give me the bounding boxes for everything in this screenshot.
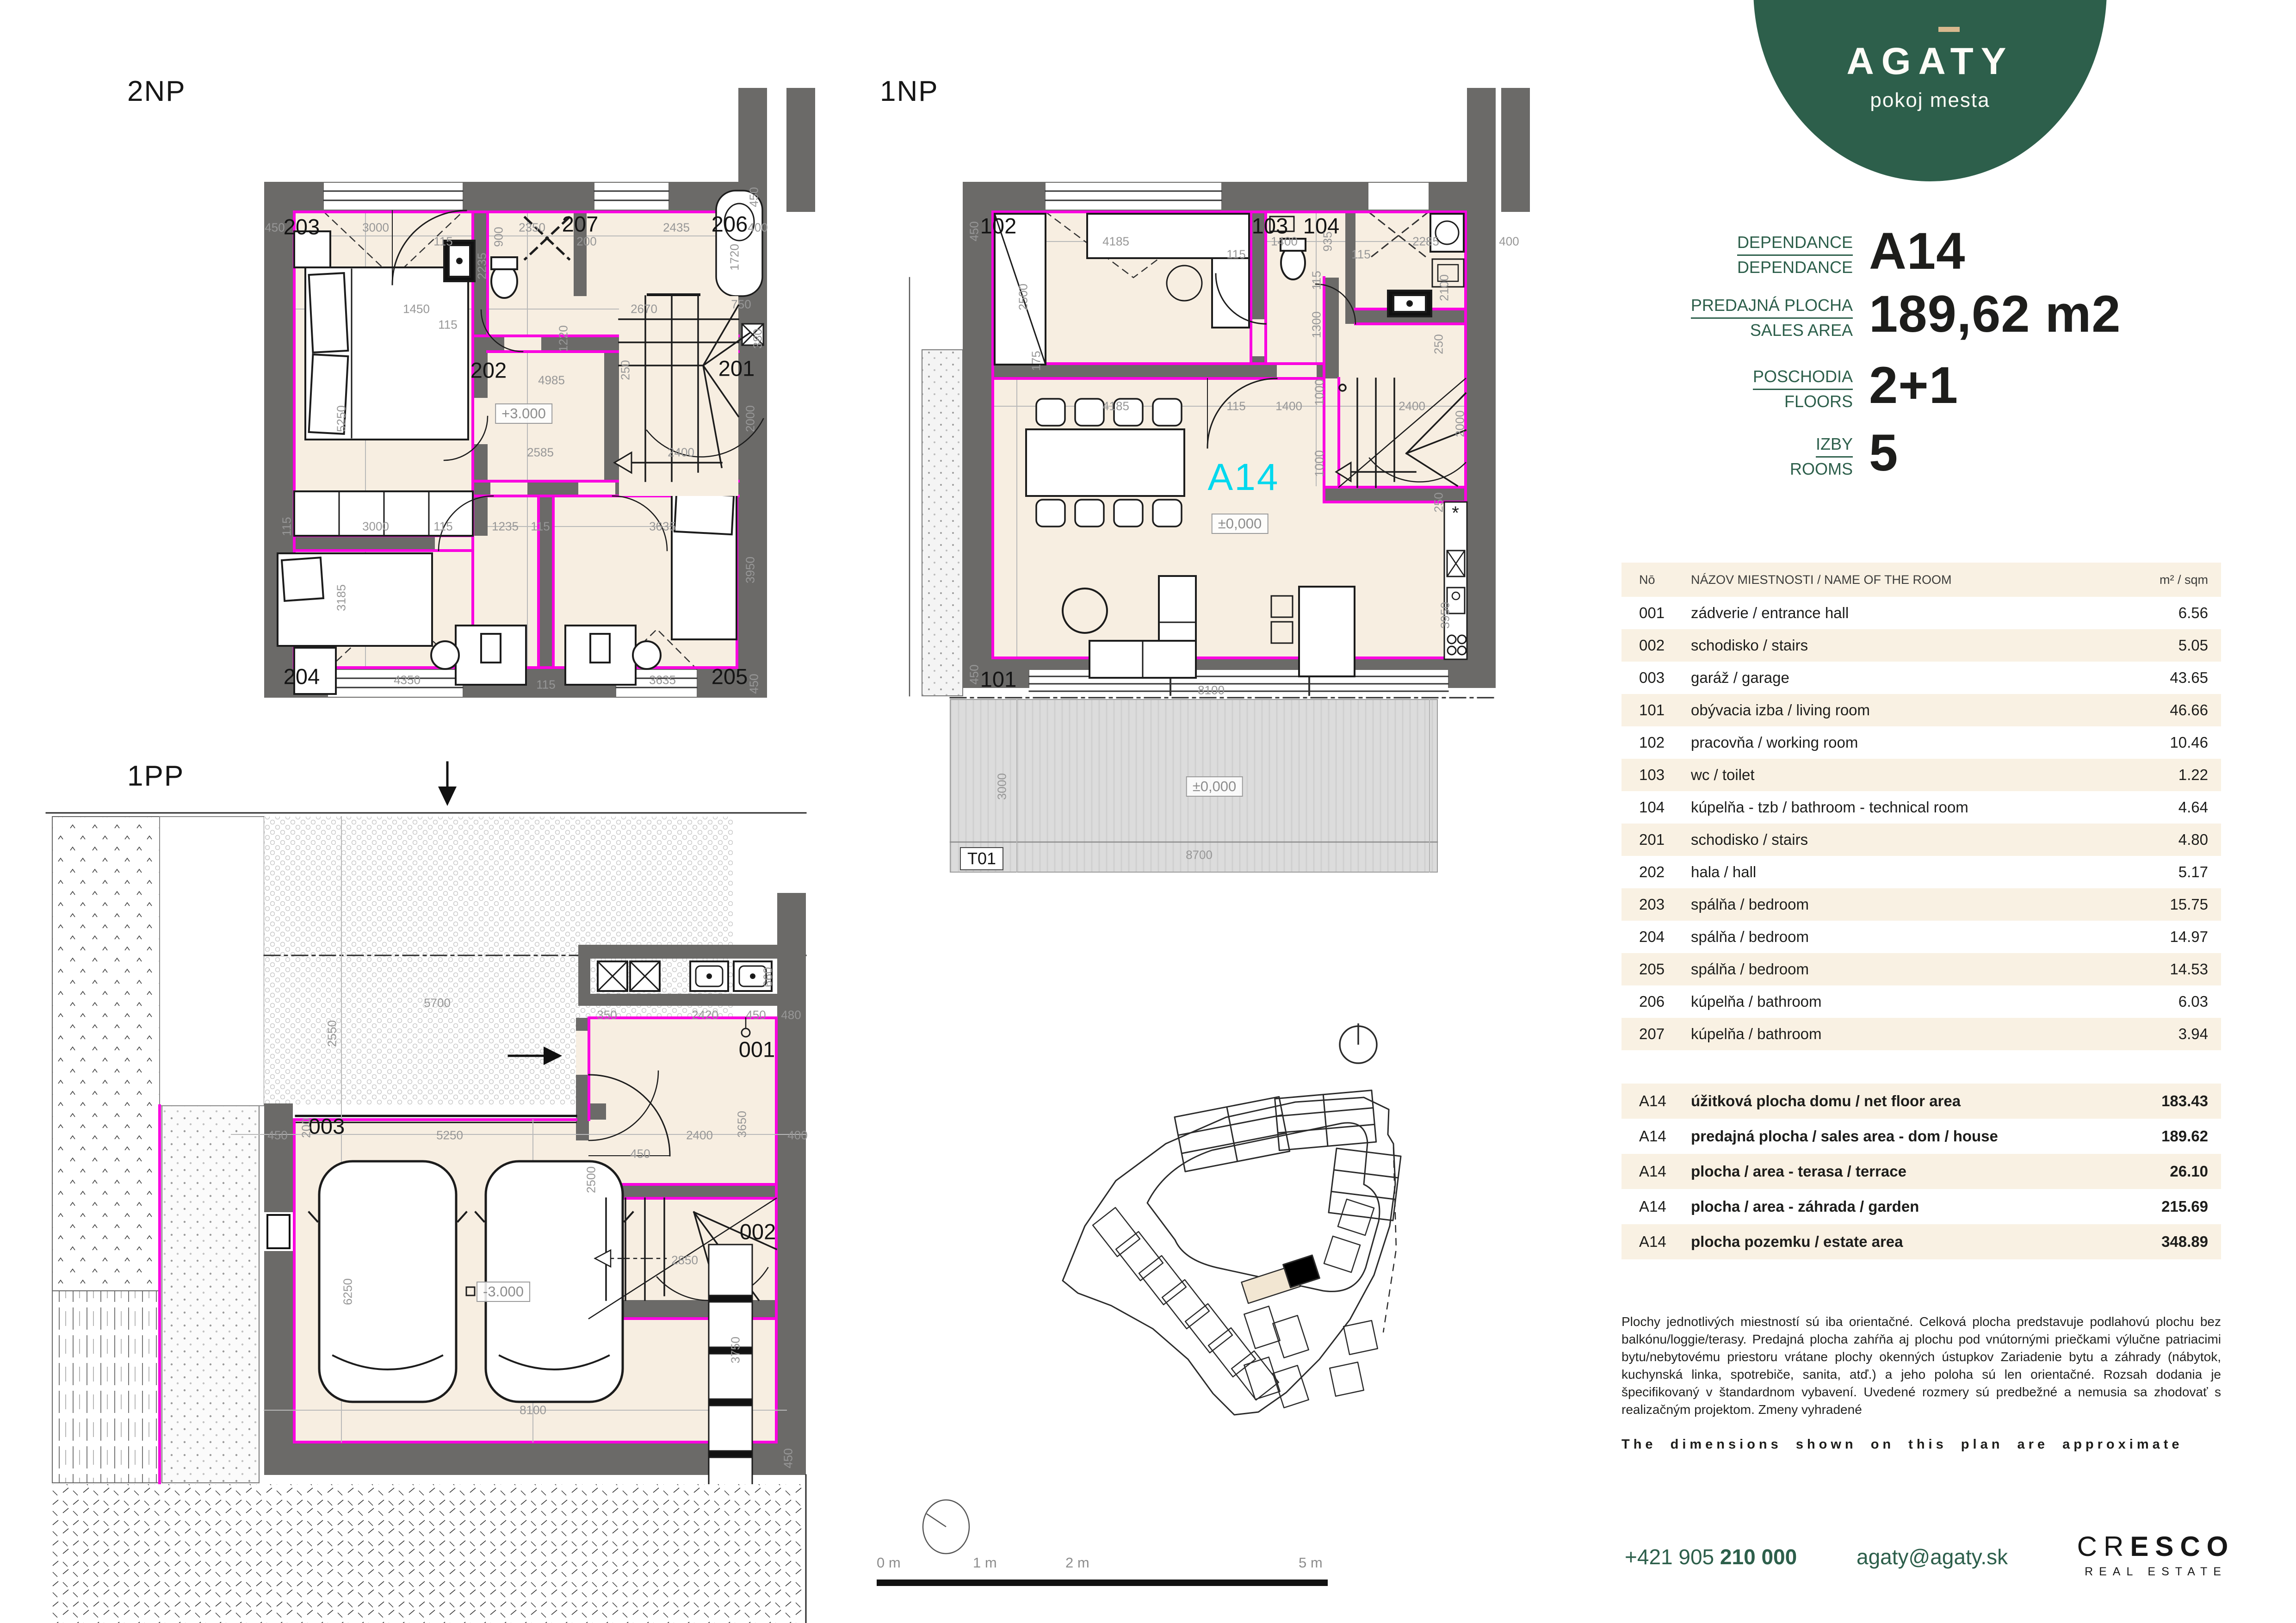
summary-name: plocha pozemku / estate area	[1691, 1233, 2119, 1251]
dim-label: 450	[747, 674, 761, 694]
dim-label: 8100	[520, 1403, 546, 1418]
level-label: -3.000	[477, 1282, 530, 1302]
room-area: 4.80	[2119, 831, 2221, 849]
scale-bar: 0 m 1 m 2 m 5 m	[877, 1555, 1332, 1586]
info-value-rooms: 5	[1869, 423, 1898, 483]
room-name: obývacia izba / living room	[1691, 701, 2119, 719]
dim-label: 450	[967, 664, 982, 684]
room-table-row-206: 206kúpelňa / bathroom6.03	[1621, 985, 2221, 1018]
info-value-unit: A14	[1869, 221, 1965, 281]
dim-label: 115	[1226, 399, 1245, 414]
disclaimer-text-en: The dimensions shown on this plan are ap…	[1621, 1437, 2221, 1452]
room-name: schodisko / stairs	[1691, 831, 2119, 849]
dim-label: 2500	[1016, 284, 1031, 310]
room-label-003: 003	[309, 1114, 345, 1139]
dim-label: 450	[267, 1128, 287, 1143]
info-label-rooms: IZBYROOMS	[1608, 434, 1853, 479]
dim-label: 115	[1310, 271, 1324, 290]
room-area: 43.65	[2119, 669, 2221, 687]
dim-label: 2000	[743, 405, 758, 432]
agaty-logo: AGATY pokoj mesta	[1753, 0, 2107, 181]
room-name: kúpelňa / bathroom	[1691, 993, 2119, 1010]
dim-label: 2585	[527, 446, 554, 460]
logo-name: AGATY	[1753, 40, 2107, 83]
summary-area: 26.10	[2119, 1163, 2221, 1180]
dim-label: 2285	[1412, 235, 1439, 249]
dim-label: 480	[781, 1008, 801, 1022]
room-area: 5.17	[2119, 863, 2221, 881]
room-no: 207	[1621, 1025, 1691, 1043]
dim-label: 115	[433, 520, 452, 534]
dim-label: 450	[630, 1147, 650, 1161]
tag-label-T01: T01	[960, 847, 1003, 870]
scale-0m: 0 m	[877, 1555, 901, 1571]
room-table-row-101: 101obývacia izba / living room46.66	[1621, 694, 2221, 726]
dim-label: 3185	[334, 584, 349, 611]
room-no: 101	[1621, 701, 1691, 719]
dim-label: 200	[299, 1118, 314, 1138]
dim-label: 8700	[1186, 848, 1213, 862]
info-label-dependance: DEPENDANCEDEPENDANCE	[1608, 232, 1853, 278]
room-label-204: 204	[284, 664, 320, 689]
summary-row-0: A14úžitková plocha domu / net floor area…	[1621, 1084, 2221, 1119]
dim-label: 175	[1029, 351, 1044, 371]
dim-label: 2350	[519, 221, 545, 235]
footer-phone[interactable]: +421 905 210 000	[1625, 1544, 1797, 1569]
summary-row-3: A14plocha / area - záhrada / garden215.6…	[1621, 1189, 2221, 1224]
dim-label: 5700	[424, 996, 451, 1010]
room-name: spálňa / bedroom	[1691, 896, 2119, 913]
dim-label: 3635	[649, 520, 676, 534]
level-label: ±0,000	[1186, 776, 1243, 797]
dim-label: 8100	[1198, 683, 1225, 698]
room-name: spálňa / bedroom	[1691, 928, 2119, 946]
cresco-bold: ESCO	[2130, 1531, 2234, 1562]
unit-label-A14: A14	[1208, 456, 1280, 499]
dim-label: 250	[1432, 492, 1446, 512]
dim-label: 2850	[671, 1253, 698, 1268]
dim-label: 400	[1499, 235, 1519, 249]
room-label-102: 102	[980, 213, 1016, 239]
dim-label: 400	[748, 221, 767, 235]
dim-label: 5250	[334, 405, 349, 432]
scale-bar-rule	[877, 1580, 1328, 1586]
summary-area: 215.69	[2119, 1198, 2221, 1215]
floorplan-sheet: { "logo": { "name": "AGATY", "tagline": …	[0, 0, 2296, 1623]
room-area: 3.94	[2119, 1025, 2221, 1043]
dim-label: 115	[438, 318, 457, 332]
dim-label: 2400	[668, 446, 694, 460]
room-no: 002	[1621, 637, 1691, 654]
summary-row-2: A14plocha / area - terasa / terrace26.10	[1621, 1154, 2221, 1189]
dim-label: 900	[492, 227, 506, 247]
dim-label: 4185	[1102, 235, 1129, 249]
room-name: hala / hall	[1691, 863, 2119, 881]
summary-unit: A14	[1621, 1092, 1691, 1110]
summary-area: 189.62	[2119, 1127, 2221, 1145]
room-area: 6.56	[2119, 604, 2221, 622]
dim-label: 2400	[686, 1128, 713, 1143]
dim-label: 935	[1321, 231, 1335, 251]
dim-label: 4985	[538, 373, 565, 388]
room-area: 46.66	[2119, 701, 2221, 719]
dim-label: 3000	[362, 520, 389, 534]
room-table-row-203: 203spálňa / bedroom15.75	[1621, 888, 2221, 921]
cresco-thin: CR	[2077, 1531, 2130, 1562]
dim-label: 3750	[729, 1337, 743, 1363]
room-table-row-103: 103wc / toilet1.22	[1621, 759, 2221, 791]
dim-label: 250	[1432, 334, 1446, 354]
cresco-subtitle: REAL ESTATE	[2059, 1565, 2253, 1579]
room-area: 6.03	[2119, 993, 2221, 1010]
room-no: 102	[1621, 734, 1691, 751]
dim-label: 2420	[692, 1008, 718, 1022]
dim-label: 2500	[584, 1166, 599, 1193]
room-label-207: 207	[562, 211, 598, 237]
level-label: ±0,000	[1212, 514, 1269, 534]
room-area: 15.75	[2119, 896, 2221, 913]
room-label-206: 206	[712, 211, 748, 237]
dim-label: 2550	[325, 1020, 340, 1047]
dim-label: 1400	[1271, 235, 1298, 249]
footer-email[interactable]: agaty@agaty.sk	[1857, 1544, 2008, 1569]
info-label-sales-area: PREDAJNÁ PLOCHASALES AREA	[1608, 295, 1853, 341]
room-no: 206	[1621, 993, 1691, 1010]
room-name: spálňa / bedroom	[1691, 960, 2119, 978]
room-no: 203	[1621, 896, 1691, 913]
dim-label: 660	[761, 967, 775, 987]
level-label: +3.000	[495, 403, 552, 424]
disclaimer-text: Plochy jednotlivých miestností sú iba or…	[1621, 1313, 2221, 1419]
room-area: 10.46	[2119, 734, 2221, 751]
room-table-row-104: 104kúpelňa - tzb / bathroom - technical …	[1621, 791, 2221, 824]
dim-label: 2435	[663, 221, 690, 235]
room-label-201: 201	[718, 356, 755, 381]
summary-name: predajná plocha / sales area - dom / hou…	[1691, 1127, 2119, 1145]
dim-label: 1400	[1275, 399, 1302, 414]
info-value-sales-area: 189,62 m2	[1869, 284, 2121, 344]
dim-label: 2670	[631, 302, 657, 316]
cresco-logo: CRESCO REAL ESTATE	[2059, 1530, 2253, 1579]
room-table-row-003: 003garáž / garage43.65	[1621, 662, 2221, 694]
room-area: 4.64	[2119, 799, 2221, 816]
room-table-row-102: 102pracovňa / working room10.46	[1621, 726, 2221, 759]
room-label-203: 203	[284, 214, 320, 240]
room-no: 201	[1621, 831, 1691, 849]
summary-table: A14úžitková plocha domu / net floor area…	[1621, 1084, 2221, 1259]
summary-unit: A14	[1621, 1233, 1691, 1251]
header-name: NÁZOV MIESTNOSTI / NAME OF THE ROOM	[1691, 573, 2119, 587]
room-area: 14.97	[2119, 928, 2221, 946]
room-table-header: Nō NÁZOV MIESTNOSTI / NAME OF THE ROOM m…	[1621, 563, 2221, 597]
header-no: Nō	[1621, 573, 1691, 587]
dim-label: 750	[731, 297, 751, 312]
scale-2m: 2 m	[1065, 1555, 1089, 1571]
dim-label: 3000	[362, 221, 389, 235]
room-label-101: 101	[980, 667, 1016, 692]
scale-5m: 5 m	[1299, 1555, 1323, 1571]
room-area: 5.05	[2119, 637, 2221, 654]
dim-label: 350	[597, 1008, 617, 1022]
room-no: 205	[1621, 960, 1691, 978]
dim-label: 3950	[743, 557, 758, 583]
room-table: Nō NÁZOV MIESTNOSTI / NAME OF THE ROOM m…	[1621, 563, 2221, 1050]
room-name: zádverie / entrance hall	[1691, 604, 2119, 622]
summary-unit: A14	[1621, 1163, 1691, 1180]
room-area: 1.22	[2119, 766, 2221, 784]
dim-label: 2235	[475, 253, 489, 279]
dim-label: 115	[1226, 248, 1245, 262]
north-clock-icon	[918, 1498, 974, 1558]
dim-label: 115	[433, 235, 452, 249]
dim-label: 2000	[1453, 410, 1467, 437]
info-value-floors: 2+1	[1869, 355, 1958, 415]
summary-name: plocha / area - terasa / terrace	[1691, 1163, 2119, 1180]
dim-label: 1720	[728, 244, 742, 271]
dim-label: 2100	[1437, 274, 1452, 301]
dim-label: 200	[576, 235, 596, 249]
room-area: 14.53	[2119, 960, 2221, 978]
room-name: kúpelňa / bathroom	[1691, 1025, 2119, 1043]
summary-area: 348.89	[2119, 1233, 2221, 1251]
dim-label: 450	[967, 221, 982, 241]
dim-label: 1450	[403, 302, 430, 316]
dim-label: 5250	[436, 1128, 463, 1143]
summary-unit: A14	[1621, 1127, 1691, 1145]
dim-label: 450	[781, 1448, 796, 1468]
header-area: m² / sqm	[2119, 573, 2221, 587]
room-label-001: 001	[739, 1037, 775, 1062]
room-name: wc / toilet	[1691, 766, 2119, 784]
room-no: 204	[1621, 928, 1691, 946]
summary-name: plocha / area - záhrada / garden	[1691, 1198, 2119, 1215]
dim-label: 450	[747, 187, 761, 207]
summary-name: úžitková plocha domu / net floor area	[1691, 1092, 2119, 1110]
dim-label: 115	[280, 517, 294, 536]
room-no: 104	[1621, 799, 1691, 816]
dim-label: 115	[536, 678, 555, 692]
dim-label: 115	[531, 520, 550, 534]
dim-label: 3000	[995, 773, 1009, 800]
dim-label: 450	[746, 1008, 766, 1022]
logo-macron-icon	[1938, 27, 1960, 32]
dim-label: 1220	[557, 325, 571, 352]
room-table-row-201: 201schodisko / stairs4.80	[1621, 824, 2221, 856]
summary-area: 183.43	[2119, 1092, 2221, 1110]
dim-label: 3950	[1438, 602, 1453, 629]
dim-label: 115	[1351, 248, 1370, 262]
room-table-row-205: 205spálňa / bedroom14.53	[1621, 953, 2221, 985]
dim-label: 4350	[394, 673, 421, 688]
dim-label: 450	[265, 221, 285, 235]
room-table-row-002: 002schodisko / stairs5.05	[1621, 629, 2221, 662]
room-table-row-207: 207kúpelňa / bathroom3.94	[1621, 1018, 2221, 1050]
room-table-row-204: 204spálňa / bedroom14.97	[1621, 921, 2221, 953]
room-name: garáž / garage	[1691, 669, 2119, 687]
dim-label: 400	[787, 1128, 807, 1143]
room-name: schodisko / stairs	[1691, 637, 2119, 654]
room-label-002: 002	[740, 1219, 776, 1245]
dim-label: 1000	[1312, 379, 1327, 406]
dim-label: 3635	[649, 673, 676, 688]
room-table-row-001: 001zádverie / entrance hall6.56	[1621, 597, 2221, 629]
room-no: 103	[1621, 766, 1691, 784]
dim-label: 1235	[492, 520, 519, 534]
dim-label: 1000	[1312, 450, 1327, 477]
scale-bar-labels: 0 m 1 m 2 m 5 m	[877, 1555, 1332, 1573]
dim-label: 1300	[1310, 311, 1324, 338]
room-no: 202	[1621, 863, 1691, 881]
dim-label: 2400	[1399, 399, 1425, 414]
logo-tagline: pokoj mesta	[1753, 89, 2107, 112]
room-table-row-202: 202hala / hall5.17	[1621, 856, 2221, 888]
room-no: 003	[1621, 669, 1691, 687]
dim-label: 380	[751, 328, 765, 348]
room-no: 001	[1621, 604, 1691, 622]
summary-row-1: A14predajná plocha / sales area - dom / …	[1621, 1119, 2221, 1154]
dim-label: 4185	[1102, 399, 1129, 414]
room-label-205: 205	[712, 664, 748, 689]
dim-label: 250	[619, 360, 633, 380]
room-label-202: 202	[470, 358, 507, 383]
room-name: kúpelňa - tzb / bathroom - technical roo…	[1691, 799, 2119, 816]
summary-row-4: A14plocha pozemku / estate area348.89	[1621, 1224, 2221, 1259]
summary-unit: A14	[1621, 1198, 1691, 1215]
info-label-floors: POSCHODIAFLOORS	[1608, 366, 1853, 412]
scale-1m: 1 m	[973, 1555, 997, 1571]
room-name: pracovňa / working room	[1691, 734, 2119, 751]
dim-label: 6250	[341, 1278, 355, 1305]
dim-label: 3650	[735, 1111, 749, 1138]
